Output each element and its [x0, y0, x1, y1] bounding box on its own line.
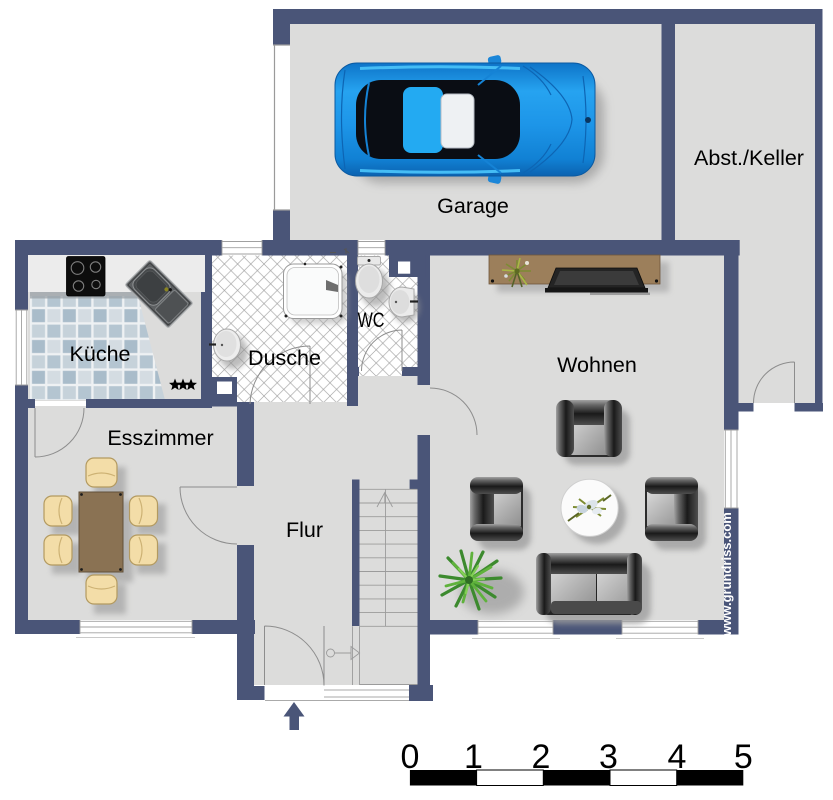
- svg-text:Wohnen: Wohnen: [557, 353, 637, 377]
- svg-text:www.grundriss.com: www.grundriss.com: [719, 512, 734, 637]
- svg-text:Flur: Flur: [286, 518, 323, 542]
- svg-text:Dusche: Dusche: [248, 346, 321, 370]
- svg-text:Garage: Garage: [437, 194, 509, 218]
- svg-text:Esszimmer: Esszimmer: [107, 426, 213, 450]
- svg-text:WC: WC: [358, 308, 385, 332]
- svg-text:Küche: Küche: [70, 342, 131, 366]
- svg-text:Abst./Keller: Abst./Keller: [694, 146, 804, 170]
